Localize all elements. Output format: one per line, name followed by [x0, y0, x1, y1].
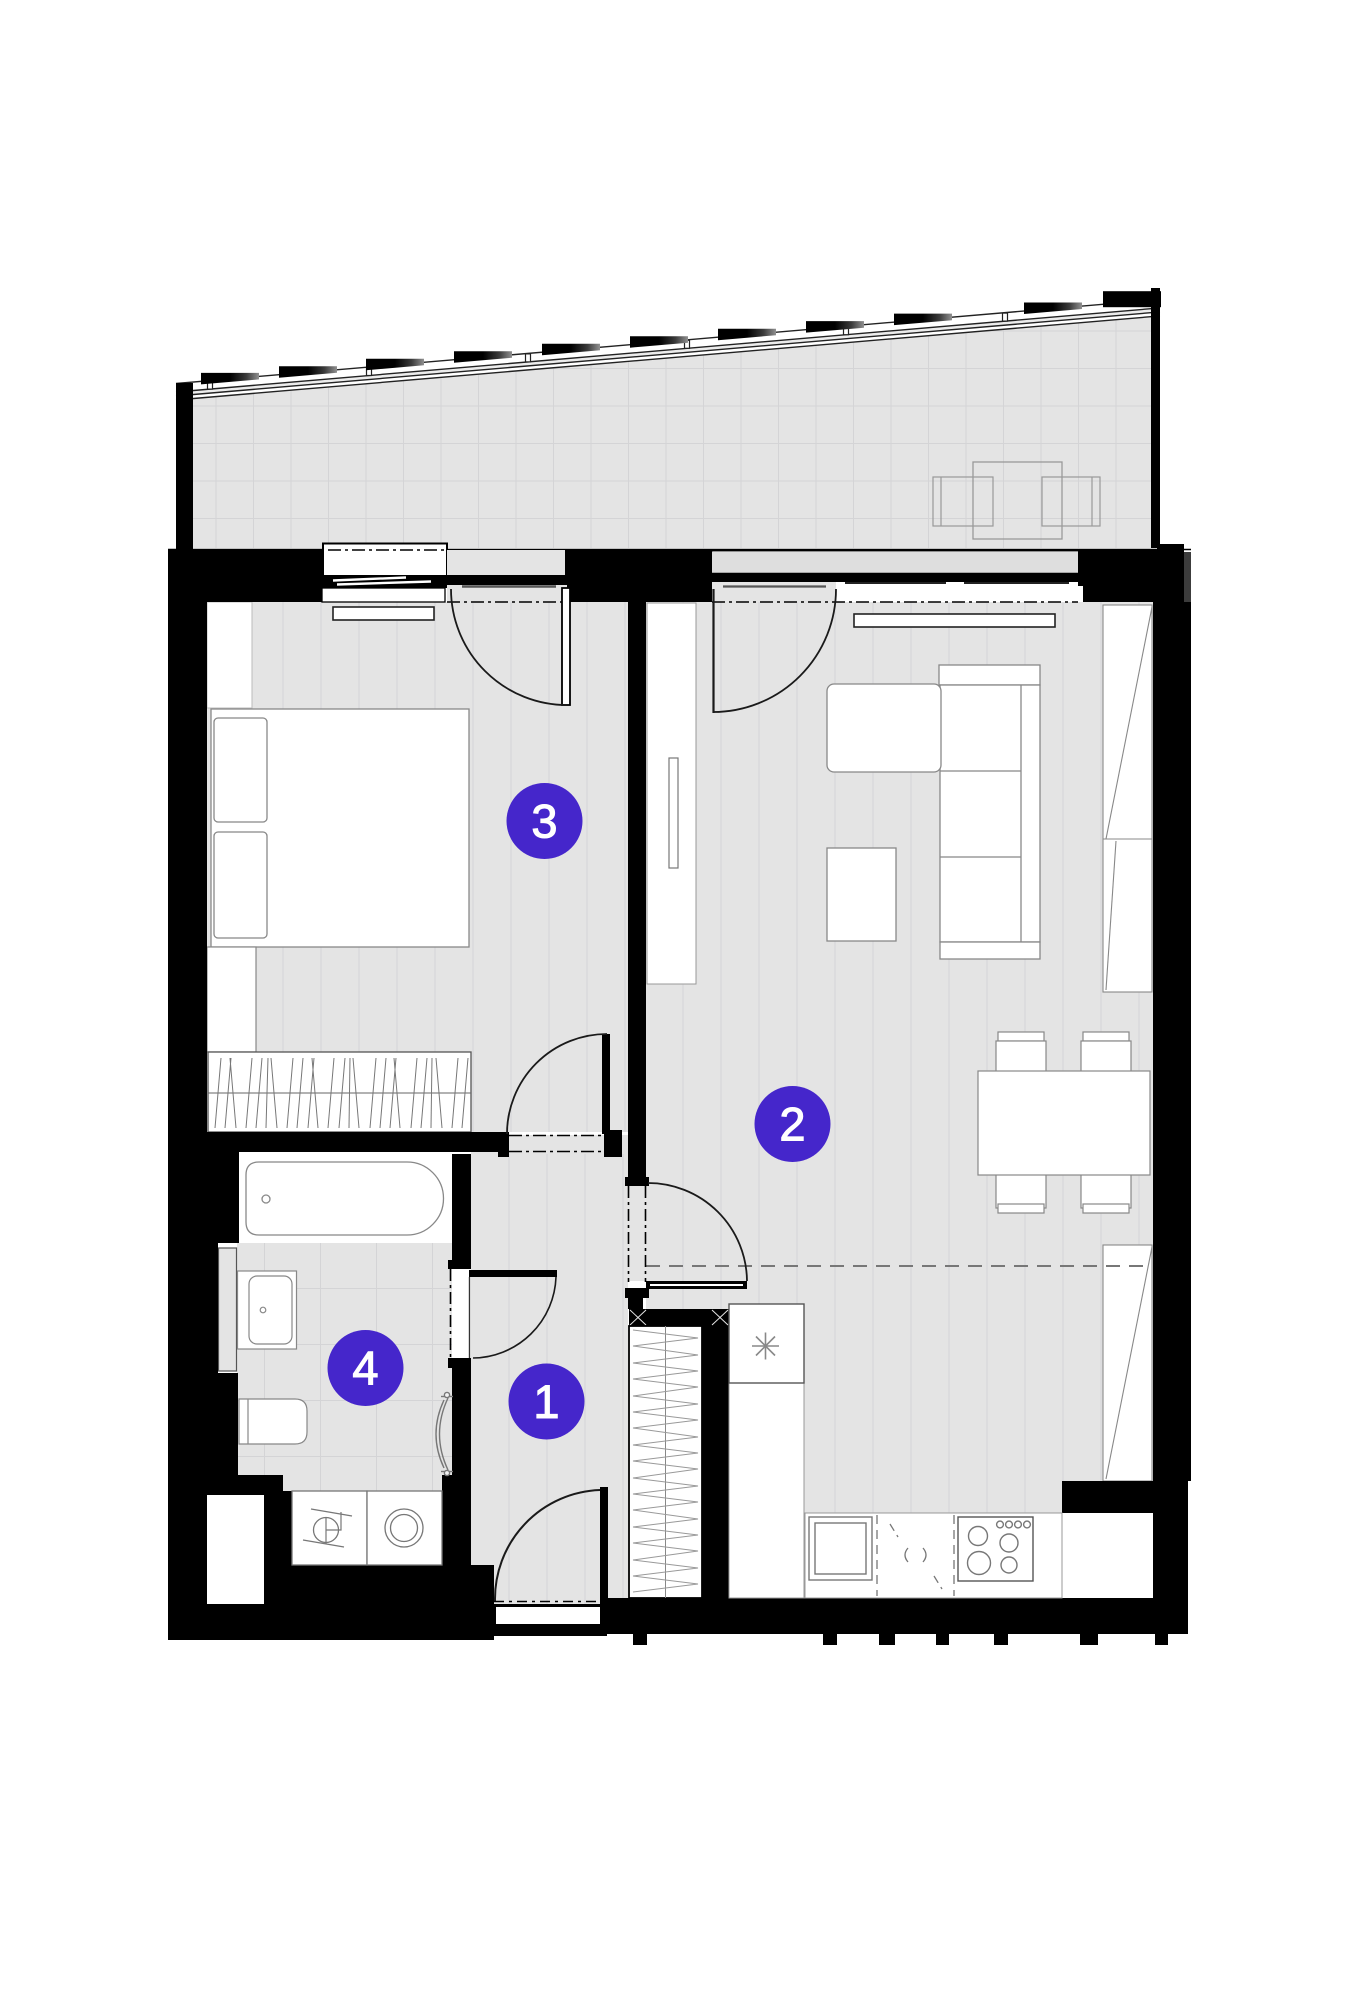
svg-text:2: 2: [779, 1098, 805, 1151]
svg-text:4: 4: [352, 1342, 378, 1395]
svg-text:1: 1: [533, 1375, 559, 1428]
svg-text:3: 3: [531, 795, 557, 848]
